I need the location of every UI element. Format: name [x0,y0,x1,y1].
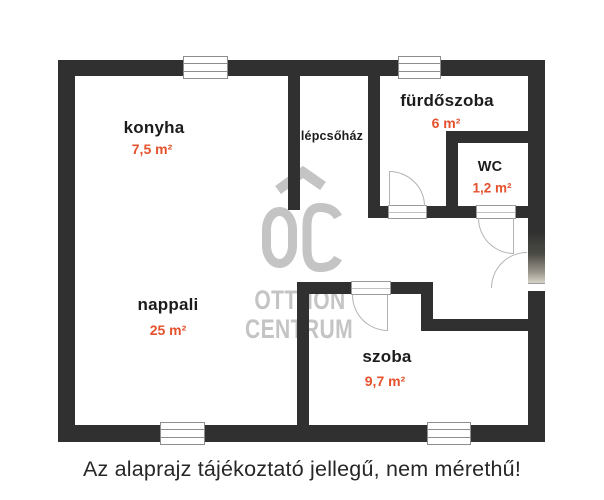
room-area-konyha: 7,5 m² [132,141,172,157]
wall-outer-top [58,60,545,76]
window-nappali-icon [160,422,205,445]
room-area-nappali: 25 m² [150,322,187,338]
disclaimer-caption: Az alaprajz tájékoztató jellegű, nem mér… [0,457,604,482]
room-label-wc: WC [478,159,503,175]
wall-outer-bottom [58,425,545,442]
wall-bath-bottom-mid [427,206,476,218]
wall-szoba-top-right [421,319,528,331]
room-area-furdoszoba: 6 m² [432,115,461,131]
room-label-lepcsohaz: lépcsőház [301,129,363,143]
room-label-szoba: szoba [362,347,411,367]
room-label-nappali: nappali [138,295,199,315]
wall-outer-right-upper [528,60,545,230]
window-szoba-icon [427,422,471,445]
room-label-konyha: konyha [124,118,185,138]
wall-bath-bottom-left [368,206,388,218]
wall-lepcsohaz-furdoszoba [368,76,380,218]
entry-door-threshold [528,283,545,291]
door-threshold-furdoszoba [388,205,427,219]
wall-outer-right-lower [528,290,545,442]
door-threshold-wc [476,205,516,219]
room-area-wc: 1,2 m² [472,181,511,196]
room-label-furdoszoba: fürdőszoba [400,91,494,111]
window-furdoszoba-icon [398,56,441,79]
room-area-szoba: 9,7 m² [365,373,405,389]
wall-nappali-szoba [297,282,309,425]
door-threshold-szoba [351,281,391,295]
window-konyha-icon [183,56,228,79]
floor-plan: OTTHON CENTRUM konyha 7,5 m² lépcsőház f… [0,0,604,500]
entry-door-icon [528,230,545,283]
wall-outer-left [58,60,75,442]
wall-wc-left [446,143,458,206]
wall-konyha-lepcsohaz [288,76,300,210]
wall-bath-bottom-right [516,206,528,218]
wall-wc-top [446,131,528,143]
